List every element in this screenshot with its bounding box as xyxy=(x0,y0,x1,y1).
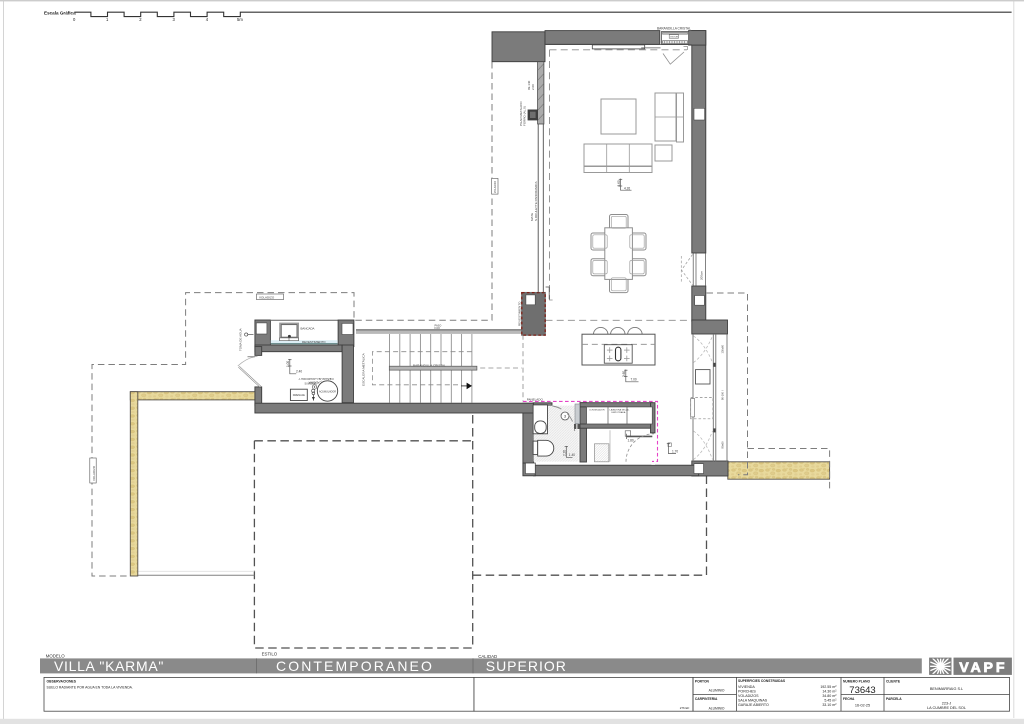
svg-text:80-100 I: 80-100 I xyxy=(721,390,725,400)
svg-text:223-J: 223-J xyxy=(942,701,952,705)
svg-text:DESAGÜE LAVADORA Y: DESAGÜE LAVADORA Y xyxy=(298,377,333,381)
svg-text:16-02-25: 16-02-25 xyxy=(855,704,870,708)
svg-text:2.40: 2.40 xyxy=(296,369,302,373)
svg-text:PANELADO: PANELADO xyxy=(527,397,544,401)
svg-text:80x60: 80x60 xyxy=(721,441,725,449)
svg-text:REVESTIMIENTO: REVESTIMIENTO xyxy=(517,301,521,326)
svg-text:GARAJE ABIERTO: GARAJE ABIERTO xyxy=(738,703,769,707)
svg-text:BARANDILLA CRISTAL: BARANDILLA CRISTAL xyxy=(413,363,446,367)
svg-text:CLIENTE: CLIENTE xyxy=(886,679,901,683)
svg-text:SUPERIOR: SUPERIOR xyxy=(486,658,567,674)
svg-text:S.ROULETTE PANORAMICA: S.ROULETTE PANORAMICA xyxy=(534,181,538,221)
svg-text:2.20: 2.20 xyxy=(563,450,567,456)
svg-text:ALUMINIO: ALUMINIO xyxy=(709,688,725,692)
svg-text:ACUMULADOR: ACUMULADOR xyxy=(319,390,336,393)
svg-text:276 EF: 276 EF xyxy=(680,706,690,710)
svg-text:1.70: 1.70 xyxy=(672,450,678,454)
svg-text:14.30 m²: 14.30 m² xyxy=(822,689,837,693)
svg-text:130x60: 130x60 xyxy=(721,344,725,353)
svg-text:FIJO: FIJO xyxy=(435,327,440,330)
svg-text:1.80: 1.80 xyxy=(628,438,634,442)
svg-text:DRENAJE: DRENAJE xyxy=(293,393,305,397)
svg-text:SUELO RADIANTE POR AGUA EN TOD: SUELO RADIANTE POR AGUA EN TODA LA VIVIE… xyxy=(47,685,133,689)
svg-text:FORRO (AL.0): FORRO (AL.0) xyxy=(523,106,527,126)
svg-text:BANCADA: BANCADA xyxy=(301,326,315,330)
svg-text:CONGELADOR: CONGELADOR xyxy=(589,408,605,411)
svg-text:LA CUMBRE DEL SOL: LA CUMBRE DEL SOL xyxy=(927,706,966,710)
svg-text:PARCELA: PARCELA xyxy=(886,697,902,701)
svg-text:VOLADIZO: VOLADIZO xyxy=(494,181,497,193)
svg-text:VOLADIZO: VOLADIZO xyxy=(92,465,96,481)
svg-text:1.40: 1.40 xyxy=(569,453,575,457)
svg-text:OBSERVACIONES: OBSERVACIONES xyxy=(47,679,77,683)
svg-text:VIVIENDA: VIVIENDA xyxy=(738,685,755,689)
svg-text:PORTON: PORTON xyxy=(695,679,710,683)
svg-text:34.80 m²: 34.80 m² xyxy=(822,694,837,698)
svg-text:5m: 5m xyxy=(237,17,243,22)
svg-text:LAVADORA SECAD.: LAVADORA SECAD. xyxy=(610,408,631,411)
svg-text:VILLA "KARMA": VILLA "KARMA" xyxy=(54,658,164,674)
svg-text:2.00: 2.00 xyxy=(531,84,535,90)
svg-text:192.55 m²: 192.55 m² xyxy=(820,685,837,689)
svg-text:VAPF: VAPF xyxy=(959,660,1007,676)
svg-text:200cm: 200cm xyxy=(699,270,703,280)
svg-text:EMPOTRADA: EMPOTRADA xyxy=(612,411,626,414)
svg-text:ESCALERA METÁLICA: ESCALERA METÁLICA xyxy=(362,352,366,386)
svg-text:Escala Gráfica: Escala Gráfica xyxy=(44,11,76,16)
svg-text:73643: 73643 xyxy=(849,685,875,696)
svg-text:VOLADIZO: VOLADIZO xyxy=(259,295,275,299)
svg-text:BENIMARRAIG S.L: BENIMARRAIG S.L xyxy=(930,687,963,691)
svg-text:ESTILO: ESTILO xyxy=(262,652,278,657)
svg-text:7.00: 7.00 xyxy=(631,378,637,382)
svg-text:SALA MAQUINAS: SALA MAQUINAS xyxy=(738,698,768,702)
svg-text:33.10 m²: 33.10 m² xyxy=(822,703,837,707)
svg-text:ALUMINIO: ALUMINIO xyxy=(709,707,725,711)
svg-text:PORCHES: PORCHES xyxy=(738,689,756,693)
svg-text:VOLADIZOS: VOLADIZOS xyxy=(738,694,759,698)
svg-text:SUPERFICIES CONSTRUIDAS: SUPERFICIES CONSTRUIDAS xyxy=(738,679,786,683)
svg-text:5.45 m²: 5.45 m² xyxy=(824,698,837,702)
svg-text:TOMA DE AGUA: TOMA DE AGUA xyxy=(239,328,243,351)
svg-text:ESTOR: ESTOR xyxy=(671,36,679,38)
svg-text:BARANDILLA CRISTAL: BARANDILLA CRISTAL xyxy=(657,27,691,31)
svg-text:4.26: 4.26 xyxy=(624,186,630,190)
svg-text:NUMERO PLANO: NUMERO PLANO xyxy=(843,679,871,683)
svg-text:8.60: 8.60 xyxy=(617,180,621,186)
svg-text:CARPINTERIA: CARPINTERIA xyxy=(695,697,718,701)
svg-text:REVESTIMIENTO: REVESTIMIENTO xyxy=(302,340,326,344)
svg-text:CONTEMPORANEO: CONTEMPORANEO xyxy=(276,658,434,674)
svg-text:3.60: 3.60 xyxy=(622,371,626,377)
svg-text:FECHA: FECHA xyxy=(843,697,855,701)
svg-text:1.00: 1.00 xyxy=(286,361,290,367)
